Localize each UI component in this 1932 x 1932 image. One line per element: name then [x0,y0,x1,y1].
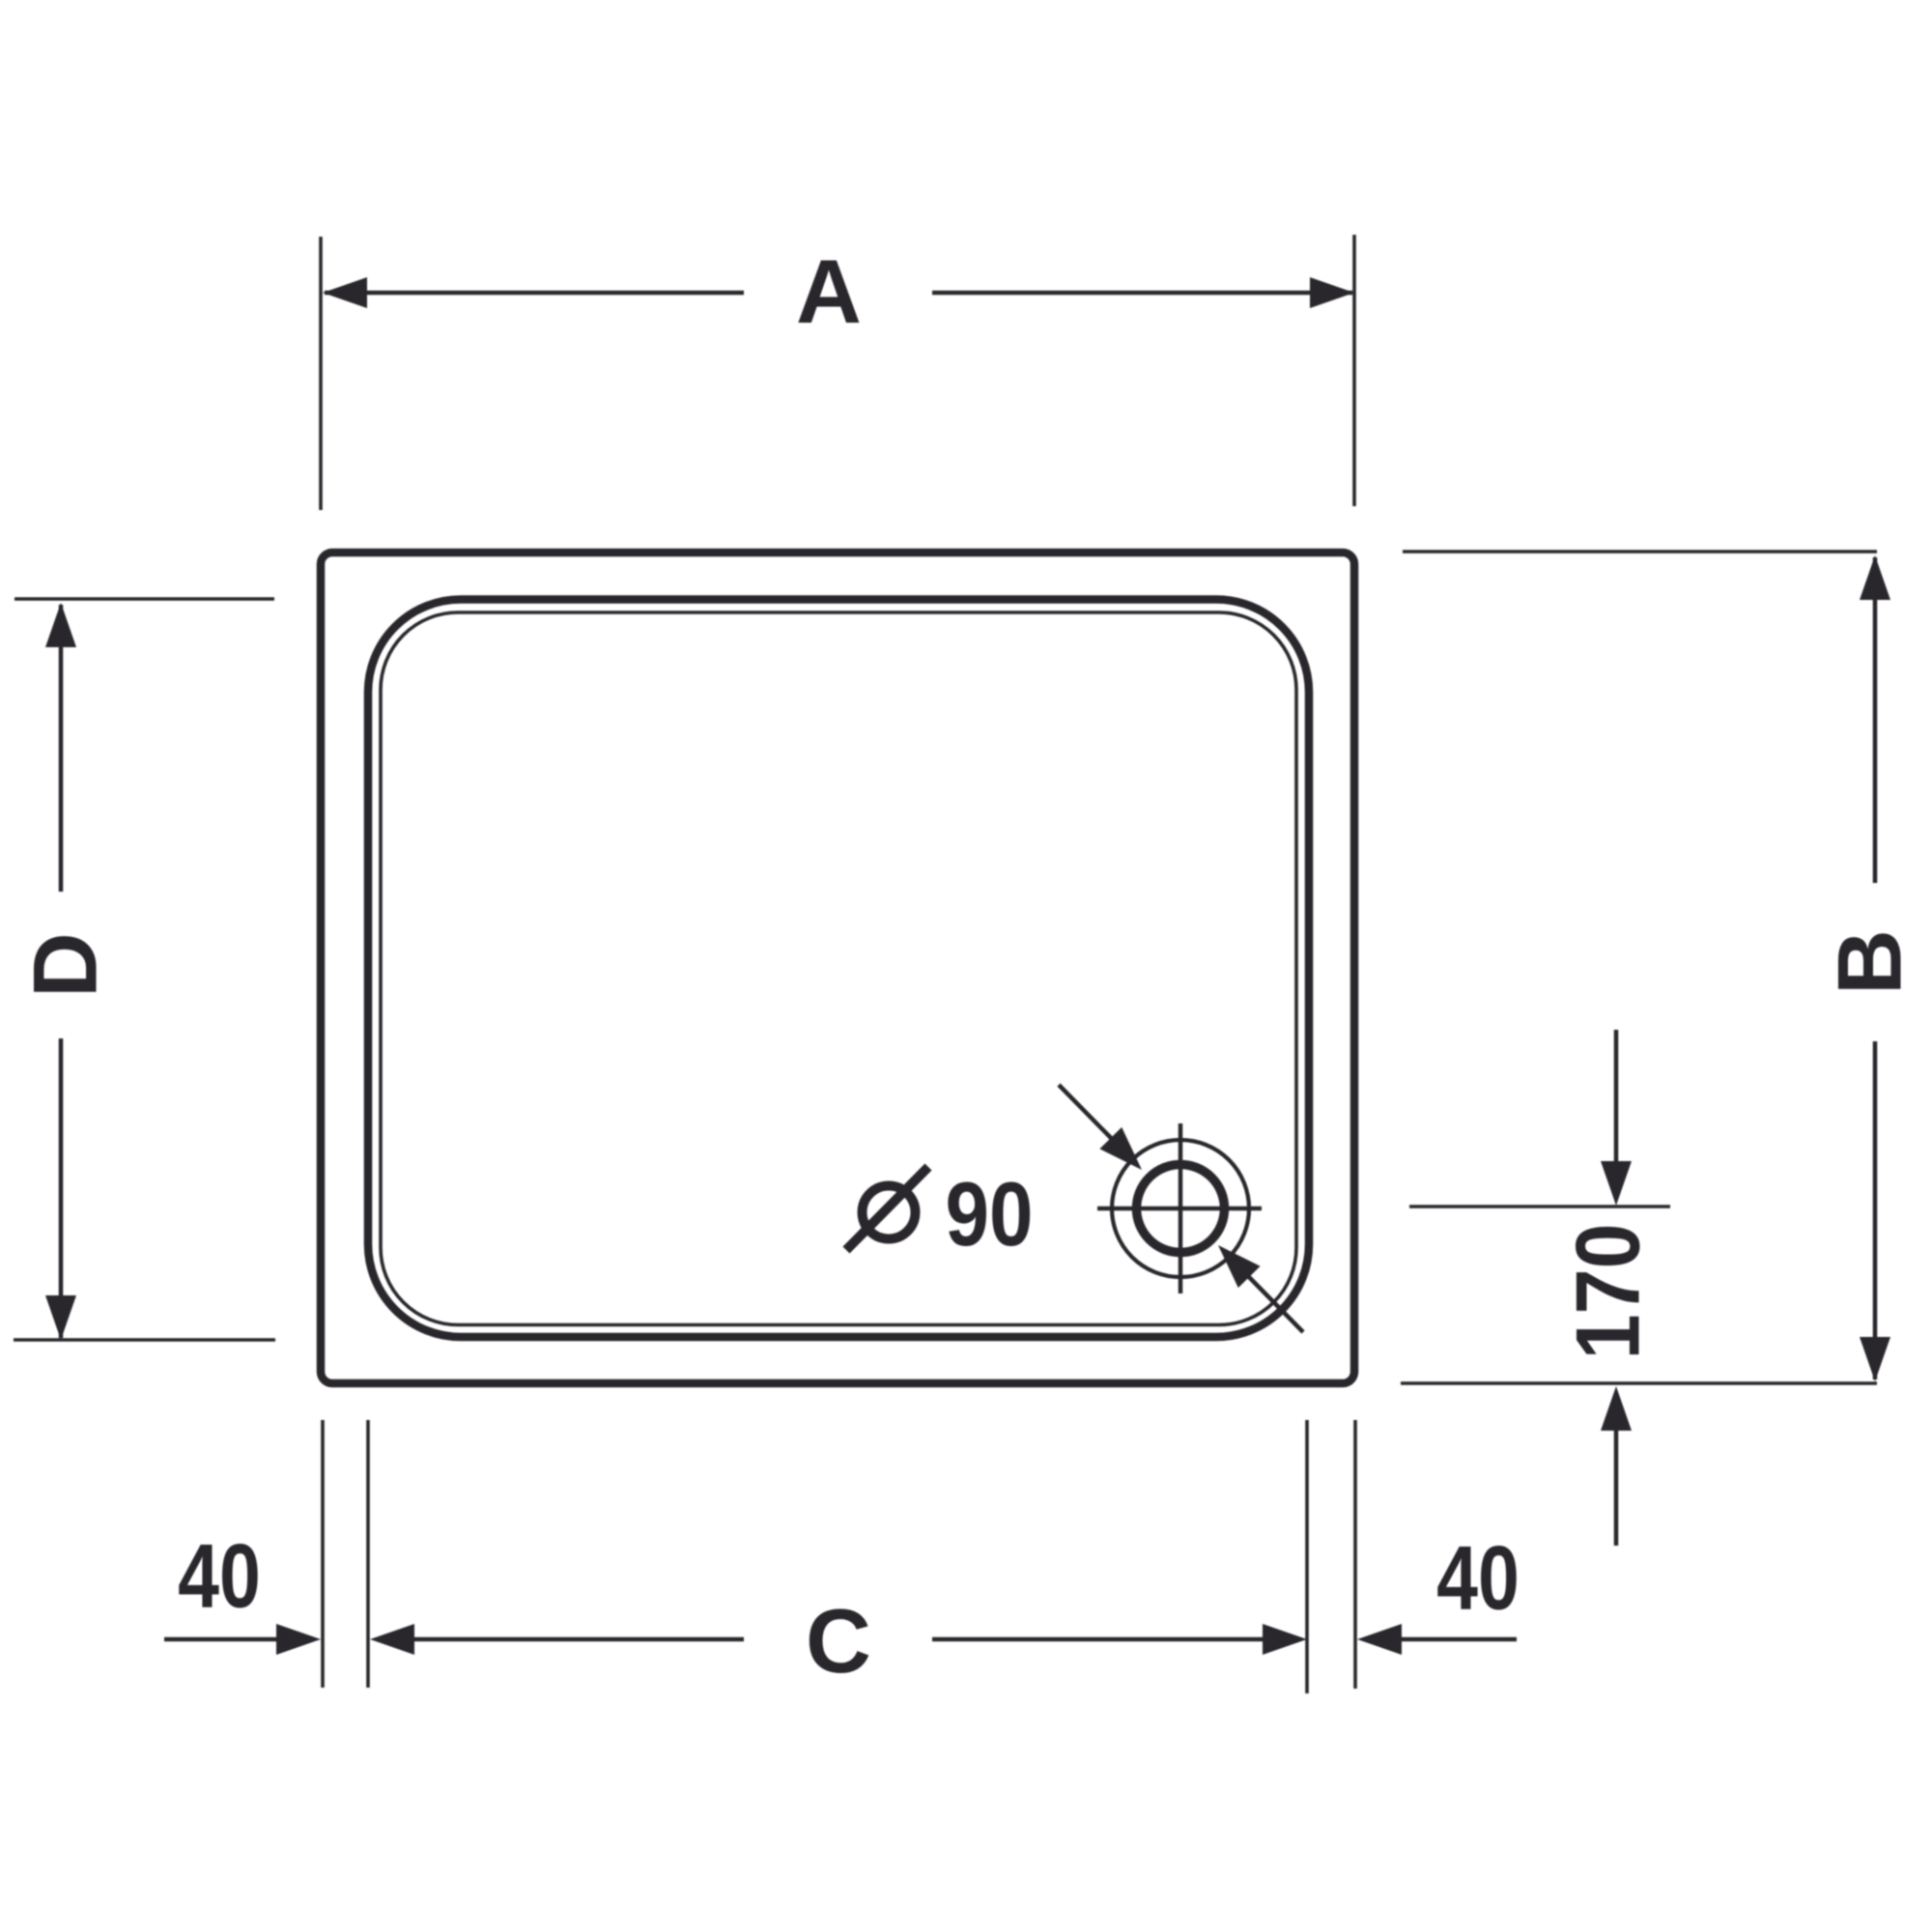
svg-text:A: A [796,241,862,342]
svg-text:B: B [1819,929,1920,995]
svg-text:D: D [14,932,116,998]
svg-text:C: C [806,1590,871,1691]
svg-text:40: 40 [1436,1527,1520,1629]
svg-text:40: 40 [178,1525,261,1627]
svg-text:90: 90 [946,1163,1034,1265]
svg-text:170: 170 [1556,1223,1658,1359]
